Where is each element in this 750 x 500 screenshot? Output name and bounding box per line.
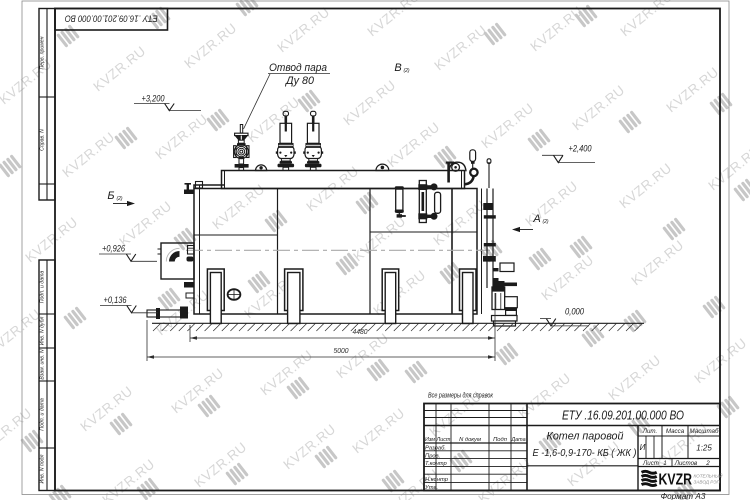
svg-text:2: 2 — [705, 460, 710, 467]
svg-text:0,000: 0,000 — [565, 307, 584, 317]
svg-text:+2,400: +2,400 — [569, 144, 592, 154]
svg-text:Т.контр: Т.контр — [425, 461, 448, 467]
svg-text:Ду 80: Ду 80 — [284, 75, 315, 87]
svg-text:В: В — [394, 62, 401, 74]
svg-text:Формат А3: Формат А3 — [661, 492, 706, 500]
svg-text:Лит.: Лит. — [642, 428, 658, 435]
svg-text:И: И — [640, 443, 646, 452]
svg-text:Подп. и дата: Подп. и дата — [40, 398, 46, 431]
svg-text:Взам. инв. N: Взам. инв. N — [40, 349, 46, 379]
svg-text:+0,926: +0,926 — [102, 244, 125, 254]
svg-text:Инв. N подл: Инв. N подл — [40, 454, 46, 483]
svg-text:5000: 5000 — [334, 346, 350, 355]
svg-text:А: А — [532, 213, 540, 225]
svg-text:ЗАВОД РЭП: ЗАВОД РЭП — [694, 480, 721, 485]
svg-text:Лист: Лист — [642, 460, 659, 467]
svg-text:N докум: N докум — [459, 437, 481, 443]
svg-text:4480: 4480 — [353, 327, 369, 336]
svg-text:Инв. N дубл: Инв. N дубл — [40, 317, 46, 346]
svg-text:Е -1,6-0,9-170- КБ ( ЖК ): Е -1,6-0,9-170- КБ ( ЖК ) — [533, 448, 637, 459]
svg-text:Листов: Листов — [674, 460, 698, 467]
svg-text:Дата: Дата — [510, 437, 525, 443]
svg-text:(2): (2) — [116, 196, 122, 202]
svg-text:KVZR: KVZR — [659, 471, 693, 488]
svg-text:Подп. и дата: Подп. и дата — [40, 271, 46, 304]
svg-text:+3,200: +3,200 — [142, 94, 165, 104]
svg-text:ЕТУ .16.09.201.00.000 ВО: ЕТУ .16.09.201.00.000 ВО — [562, 409, 684, 423]
svg-text:Масса: Масса — [666, 428, 685, 435]
svg-text:Отвод пара: Отвод пара — [269, 62, 327, 74]
svg-text:КОТЕЛЬНЫЙ: КОТЕЛЬНЫЙ — [694, 472, 724, 479]
svg-text:Масштаб: Масштаб — [690, 428, 719, 435]
svg-text:Утв.: Утв. — [424, 485, 438, 491]
svg-text:Пров.: Пров. — [425, 453, 440, 459]
svg-text:Справ. N: Справ. N — [40, 129, 46, 151]
svg-text:1: 1 — [663, 460, 666, 467]
svg-text:(2): (2) — [542, 219, 548, 225]
svg-text:Б: Б — [107, 190, 114, 202]
svg-text:Все размеры для справок: Все размеры для справок — [428, 391, 493, 400]
svg-text:Изм: Изм — [425, 437, 435, 443]
svg-text:ЕТУ .16.09.201.00.000 ВО: ЕТУ .16.09.201.00.000 ВО — [65, 13, 158, 23]
svg-text:(2): (2) — [403, 68, 409, 74]
svg-text:Перв. примен: Перв. примен — [40, 36, 46, 69]
svg-text:Разраб.: Разраб. — [425, 446, 446, 452]
svg-text:Лист: Лист — [436, 437, 451, 443]
svg-text:Котел паровой: Котел паровой — [547, 431, 624, 443]
svg-text:Н.контр: Н.контр — [425, 477, 449, 483]
svg-text:+0,136: +0,136 — [104, 295, 127, 305]
svg-text:1:25: 1:25 — [696, 444, 712, 453]
svg-text:Подп: Подп — [493, 437, 508, 443]
